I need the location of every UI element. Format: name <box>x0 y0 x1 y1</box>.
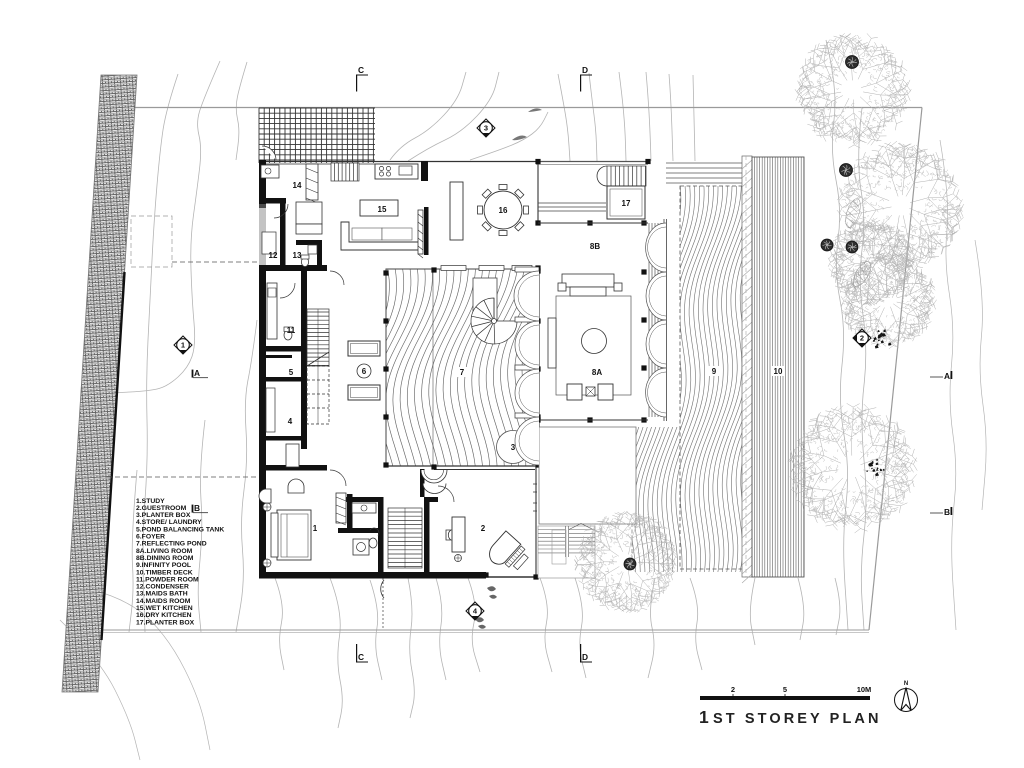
svg-text:2: 2 <box>731 685 735 694</box>
svg-text:2.GUESTROOM: 2.GUESTROOM <box>136 505 187 512</box>
svg-text:13.MAIDS BATH: 13.MAIDS BATH <box>136 591 188 598</box>
svg-text:5: 5 <box>289 368 294 377</box>
svg-text:C: C <box>358 652 364 662</box>
svg-text:1: 1 <box>699 707 709 727</box>
svg-text:5.POND BALANCING TANK: 5.POND BALANCING TANK <box>136 526 224 533</box>
svg-text:8A.LIVING ROOM: 8A.LIVING ROOM <box>136 548 193 555</box>
svg-text:8A: 8A <box>592 368 602 377</box>
svg-text:13: 13 <box>293 251 302 260</box>
svg-text:1: 1 <box>313 524 318 533</box>
svg-text:17: 17 <box>622 199 631 208</box>
svg-text:12: 12 <box>269 251 278 260</box>
svg-text:ST STOREY PLAN: ST STOREY PLAN <box>713 711 882 727</box>
svg-text:12.CONDENSER: 12.CONDENSER <box>136 584 189 591</box>
svg-text:14.MAIDS ROOM: 14.MAIDS ROOM <box>136 598 191 605</box>
svg-text:9.INFINITY POOL: 9.INFINITY POOL <box>136 562 191 569</box>
svg-text:9: 9 <box>712 367 717 376</box>
svg-text:N: N <box>904 681 908 687</box>
svg-text:3: 3 <box>511 443 516 452</box>
svg-text:D: D <box>582 652 588 662</box>
svg-text:10.TIMBER DECK: 10.TIMBER DECK <box>136 569 193 576</box>
svg-text:3: 3 <box>484 124 488 133</box>
svg-text:10M: 10M <box>857 685 872 694</box>
svg-text:C: C <box>358 65 364 75</box>
svg-text:5: 5 <box>783 685 787 694</box>
svg-text:11.POWDER ROOM: 11.POWDER ROOM <box>136 576 199 583</box>
svg-text:7.REFLECTING POND: 7.REFLECTING POND <box>136 541 207 548</box>
svg-text:15.WET KITCHEN: 15.WET KITCHEN <box>136 605 193 612</box>
svg-text:D: D <box>582 65 588 75</box>
svg-text:3.PLANTER BOX: 3.PLANTER BOX <box>136 512 191 519</box>
svg-text:6.FOYER: 6.FOYER <box>136 534 165 541</box>
svg-text:B: B <box>944 507 950 517</box>
svg-text:8B.DINING ROOM: 8B.DINING ROOM <box>136 555 194 562</box>
svg-text:6: 6 <box>362 367 367 376</box>
svg-text:11: 11 <box>287 326 296 335</box>
svg-text:2: 2 <box>860 334 864 343</box>
svg-text:7: 7 <box>460 368 465 377</box>
svg-text:1: 1 <box>181 341 185 350</box>
svg-text:B: B <box>194 503 200 513</box>
svg-text:A: A <box>944 371 950 381</box>
svg-text:15: 15 <box>378 205 387 214</box>
svg-text:8B: 8B <box>590 242 600 251</box>
svg-text:4.STORE/ LAUNDRY: 4.STORE/ LAUNDRY <box>136 519 202 526</box>
svg-text:2: 2 <box>481 524 486 533</box>
svg-text:4: 4 <box>288 417 293 426</box>
svg-text:1.STUDY: 1.STUDY <box>136 498 165 505</box>
svg-text:17.PLANTER BOX: 17.PLANTER BOX <box>136 619 195 626</box>
svg-text:14: 14 <box>293 181 302 190</box>
svg-text:10: 10 <box>774 367 783 376</box>
svg-text:16: 16 <box>499 206 508 215</box>
svg-text:16.DRY KITCHEN: 16.DRY KITCHEN <box>136 612 192 619</box>
svg-text:A: A <box>194 368 200 378</box>
